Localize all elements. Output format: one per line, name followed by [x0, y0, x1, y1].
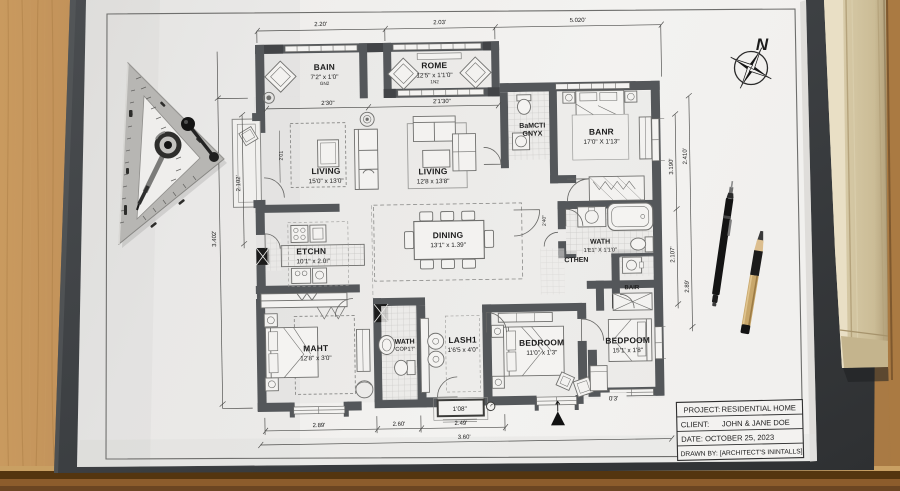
svg-text:BANR: BANR: [589, 126, 614, 136]
svg-text:15'1' x 1'8": 15'1' x 1'8": [613, 347, 644, 354]
svg-text:LIVING: LIVING: [418, 166, 447, 176]
svg-text:BEDROOM: BEDROOM: [519, 337, 564, 348]
svg-text:12'8 x 13'8": 12'8 x 13'8": [417, 178, 450, 186]
svg-text:1'08": 1'08": [453, 406, 467, 413]
svg-text:2'40": 2'40": [542, 215, 548, 226]
svg-text:2.49': 2.49': [455, 421, 468, 427]
svg-text:2.89': 2.89': [685, 280, 691, 293]
svg-text:1N2: 1N2: [430, 79, 439, 84]
svg-text:0'3': 0'3': [609, 395, 619, 402]
svg-text:GNYX: GNYX: [522, 131, 542, 138]
svg-text:2.60': 2.60': [393, 422, 406, 428]
svg-text:2.89': 2.89': [313, 423, 326, 429]
svg-text:2.03': 2.03': [433, 20, 446, 26]
svg-text:2'1'30": 2'1'30": [433, 99, 451, 105]
svg-text:N: N: [756, 35, 769, 54]
svg-text:13'1" x 1.39": 13'1" x 1.39": [430, 242, 466, 250]
svg-text:ETCHN: ETCHN: [296, 246, 326, 256]
svg-text:3.402': 3.402': [212, 231, 218, 247]
svg-text:GN2: GN2: [320, 81, 330, 86]
svg-text:LIVING: LIVING: [311, 166, 340, 176]
svg-text:2.107': 2.107': [670, 246, 676, 262]
svg-text:12'8" x 3'0": 12'8" x 3'0": [300, 355, 332, 362]
svg-text:WATH: WATH: [590, 238, 610, 245]
svg-text:CLIENT:: CLIENT:: [681, 420, 709, 430]
svg-text:BEDPOOM: BEDPOOM: [605, 335, 650, 346]
svg-text:BaMCTI: BaMCTI: [519, 122, 545, 129]
svg-text:10'1" x 2.0!": 10'1" x 2.0!": [296, 258, 330, 266]
svg-text:1'6'5 x 4'0": 1'6'5 x 4'0": [448, 347, 479, 354]
svg-text:BAIN: BAIN: [314, 62, 335, 72]
svg-text:WATH: WATH: [395, 339, 415, 346]
svg-text:1'E1" X 1'1'0": 1'E1" X 1'1'0": [584, 247, 617, 254]
svg-text:CTHEN: CTHEN: [564, 257, 588, 264]
svg-text:2'30": 2'30": [321, 101, 334, 107]
svg-text:2.102': 2.102': [236, 175, 242, 191]
svg-text:PROJECT:: PROJECT:: [683, 405, 720, 415]
svg-text:BAIR: BAIR: [624, 285, 639, 291]
svg-text:2'01: 2'01: [279, 151, 285, 161]
svg-text:ROME: ROME: [421, 60, 447, 70]
svg-text:JOHN & JANE DOE: JOHN & JANE DOE: [722, 418, 790, 429]
svg-text:17'0" X 1'13": 17'0" X 1'13": [583, 138, 619, 146]
svg-text:15'0" x 13'0": 15'0" x 13'0": [309, 178, 344, 186]
svg-text:3.60': 3.60': [458, 435, 471, 441]
svg-text:'COP1'!": 'COP1'!": [394, 347, 415, 353]
svg-text:DINING: DINING: [433, 230, 464, 240]
svg-text:LASH1: LASH1: [448, 335, 477, 345]
svg-text:11'0" x 1'3": 11'0" x 1'3": [526, 349, 557, 356]
svg-text:MAHT: MAHT: [303, 343, 329, 353]
svg-text:5.020': 5.020': [570, 18, 586, 24]
svg-text:2.410': 2.410': [683, 148, 689, 164]
svg-text:3.190': 3.190': [669, 158, 675, 174]
svg-text:RESIDENTIAL HOME: RESIDENTIAL HOME: [721, 403, 796, 414]
svg-text:2.20': 2.20': [314, 22, 327, 28]
